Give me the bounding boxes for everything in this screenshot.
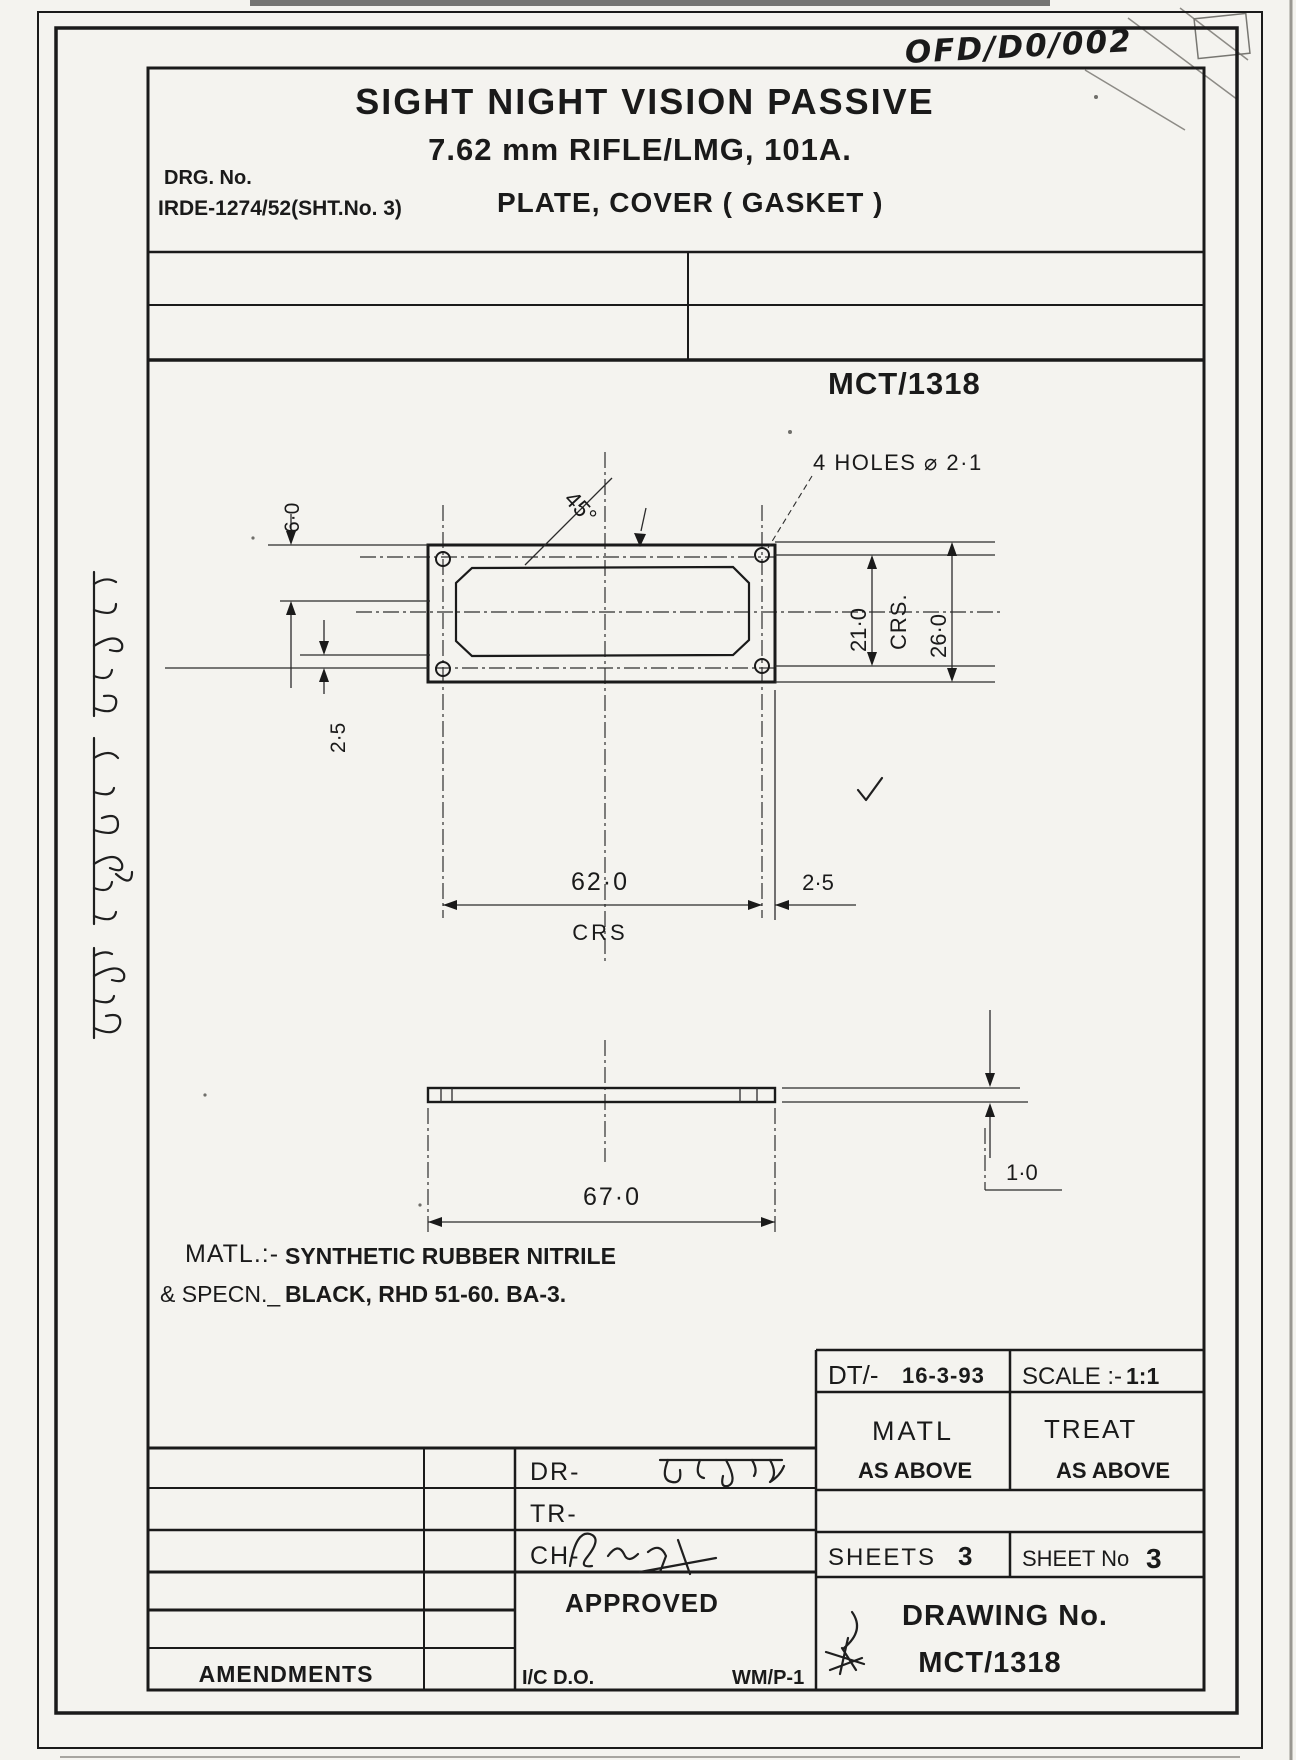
- material-note: MATL.:- SYNTHETIC RUBBER NITRILE & SPECN…: [160, 1240, 616, 1307]
- ch-signature-scribble: [570, 1534, 716, 1574]
- treat-value: AS ABOVE: [1056, 1458, 1170, 1483]
- drawing-no-label: DRAWING No.: [902, 1600, 1108, 1632]
- gasket-section-strip: [428, 1088, 775, 1102]
- dim-67-0: 67·0: [428, 1108, 775, 1232]
- scan-speck: [203, 1093, 206, 1096]
- scan-speck: [251, 536, 254, 539]
- plan-view: 4 HOLES ⌀ 2·1 45° 6·0 2·5: [165, 450, 1000, 962]
- dim-2-5-left: 2·5: [165, 620, 430, 753]
- title-header: SIGHT NIGHT VISION PASSIVE 7.62 mm RIFLE…: [148, 81, 1204, 401]
- matl-block-value: AS ABOVE: [858, 1458, 972, 1483]
- approved-signature-scribble: [826, 1612, 864, 1674]
- scan-speck: [418, 1203, 421, 1206]
- scan-speck: [788, 430, 792, 434]
- dim-1-0: 1·0: [782, 1010, 1062, 1190]
- sheet-no-value: 3: [1146, 1543, 1162, 1574]
- part-title: PLATE, COVER ( GASKET ): [497, 187, 884, 218]
- dr-signature-scribble: [660, 1460, 784, 1486]
- holes-leader-line: [768, 476, 812, 548]
- title-block: AMENDMENTS DR- TR- CH- APPROVED I/C D.O.…: [148, 1350, 1204, 1690]
- corner-label-fragment: [1194, 13, 1250, 58]
- handwritten-stamp: OFD/D0/002: [904, 23, 1133, 71]
- dim-crs-vert-label: CRS.: [886, 593, 911, 650]
- dt-value: 16-3-93: [902, 1363, 985, 1388]
- side-view: 1·0 67·0: [428, 1010, 1062, 1232]
- holes-note: 4 HOLES ⌀ 2·1: [813, 450, 983, 475]
- gasket-outer-outline: [428, 545, 775, 682]
- dim-62-crs: 62·0 CRS 2·5: [443, 690, 882, 945]
- dim-21-0-label: 21·0: [846, 608, 871, 652]
- dim-6-0: 6·0: [268, 503, 430, 688]
- dim-67-0-label: 67·0: [583, 1183, 641, 1211]
- ic-do-label: I/C D.O.: [522, 1667, 594, 1689]
- drg-no-value: IRDE-1274/52(SHT.No. 3): [158, 197, 402, 220]
- amendments-label: AMENDMENTS: [199, 1661, 374, 1687]
- chamfer-arrow-tail: [641, 508, 646, 531]
- sheets-label: SHEETS: [828, 1544, 936, 1571]
- dt-label: DT/-: [828, 1360, 879, 1390]
- scan-edge-top: [250, 0, 1050, 6]
- dim-1-0-label: 1·0: [1006, 1160, 1038, 1185]
- check-mark: [858, 778, 882, 800]
- scan-speck: [1094, 95, 1098, 99]
- scale-label: SCALE :-: [1022, 1363, 1122, 1390]
- chamfer-angle-label: 45°: [559, 486, 602, 529]
- approved-label: APPROVED: [565, 1588, 719, 1618]
- wm-label: WM/P-1: [732, 1667, 804, 1689]
- dim-crs-horiz-label: CRS: [572, 920, 627, 945]
- scanned-drawing-sheet: OFD/D0/002 SIGHT NIGHT VISION PASSIVE 7.…: [0, 0, 1296, 1760]
- dim-62-0-label: 62·0: [571, 868, 629, 896]
- sheets-value: 3: [958, 1541, 972, 1571]
- sheet-no-label: SHEET No: [1022, 1546, 1129, 1571]
- dim-26-0-label: 26·0: [926, 614, 951, 658]
- specn-label: & SPECN._: [160, 1281, 281, 1307]
- handwritten-factory-name: [94, 572, 132, 1038]
- matl-label: MATL.:-: [185, 1240, 279, 1268]
- drawing-ref: MCT/1318: [828, 366, 981, 401]
- dim-2-5-right-label: 2·5: [802, 870, 834, 895]
- drg-no-label: DRG. No.: [164, 167, 252, 189]
- scale-value: 1:1: [1126, 1363, 1159, 1389]
- chamfer-leader-line: [525, 478, 612, 565]
- specn-value: BLACK, RHD 51-60. BA-3.: [285, 1281, 566, 1307]
- drawing-no-value: MCT/1318: [918, 1647, 1061, 1679]
- scan-artifacts: [60, 0, 1291, 1760]
- tr-label: TR-: [530, 1500, 578, 1528]
- sheet-title-line1: SIGHT NIGHT VISION PASSIVE: [355, 81, 934, 122]
- dr-label: DR-: [530, 1458, 580, 1486]
- treat-label: TREAT: [1044, 1414, 1137, 1444]
- dim-6-0-label: 6·0: [281, 503, 304, 533]
- matl-value: SYNTHETIC RUBBER NITRILE: [285, 1243, 616, 1269]
- sheet-title-line2: 7.62 mm RIFLE/LMG, 101A.: [428, 132, 852, 167]
- dim-2-5-left-label: 2·5: [327, 723, 350, 753]
- matl-block-label: MATL: [872, 1416, 954, 1446]
